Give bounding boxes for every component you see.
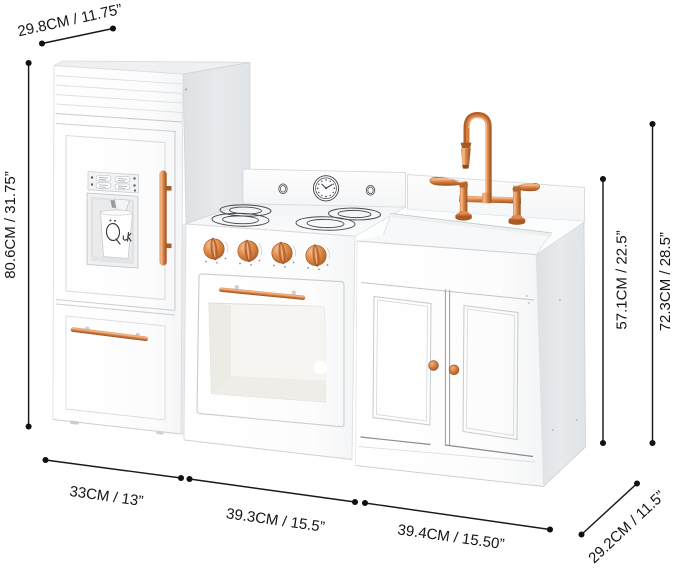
svg-text:39.4CM / 15.50”: 39.4CM / 15.50” (396, 521, 505, 553)
svg-text:29.2CM / 11.5”: 29.2CM / 11.5” (585, 488, 668, 567)
svg-text:29.8CM / 11.75”: 29.8CM / 11.75” (16, 1, 124, 40)
svg-text:57.1CM / 22.5”: 57.1CM / 22.5” (613, 230, 630, 329)
svg-text:72.3CM / 28.5”: 72.3CM / 28.5” (657, 232, 674, 331)
svg-text:39.3CM / 15.5”: 39.3CM / 15.5” (225, 505, 326, 536)
svg-text:80.6CM / 31.75”: 80.6CM / 31.75” (2, 171, 19, 279)
svg-text:33CM / 13”: 33CM / 13” (68, 483, 144, 510)
